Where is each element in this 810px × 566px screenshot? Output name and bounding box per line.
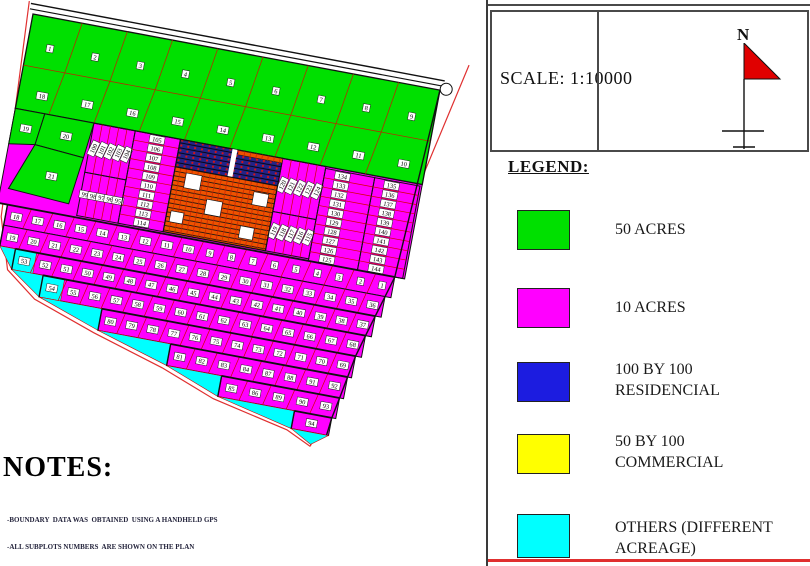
svg-text:43: 43 (232, 297, 240, 305)
panel-bottom-rule (488, 559, 810, 562)
svg-text:12: 12 (309, 144, 317, 152)
svg-text:38: 38 (338, 317, 346, 325)
legend-label: 50 BY 100 COMMERCIAL (615, 431, 723, 473)
survey-point-circle (439, 82, 453, 96)
legend-swatch-10-acres (517, 288, 570, 328)
plot-number: 3 (335, 273, 343, 282)
svg-text:93: 93 (322, 403, 330, 411)
svg-text:29: 29 (220, 274, 228, 282)
svg-text:41: 41 (274, 305, 282, 313)
svg-text:15: 15 (77, 226, 85, 234)
svg-text:60: 60 (177, 309, 185, 317)
legend-label-line: 10 ACRES (615, 297, 686, 318)
svg-text:72: 72 (276, 350, 284, 358)
svg-text:66: 66 (306, 333, 314, 341)
svg-text:63: 63 (241, 321, 249, 329)
svg-text:16: 16 (55, 222, 63, 230)
svg-text:78: 78 (149, 326, 157, 334)
svg-text:32: 32 (284, 286, 292, 294)
svg-text:16: 16 (129, 110, 137, 118)
svg-text:35: 35 (347, 298, 355, 306)
plot-number: 1 (46, 44, 54, 53)
north-label: N (737, 25, 749, 45)
svg-text:83: 83 (220, 362, 228, 370)
plot-number: 7 (249, 257, 257, 266)
svg-text:55: 55 (69, 289, 77, 297)
notes-body: -BOUNDARY DATA WAS OBTAINED USING A HAND… (7, 498, 218, 566)
plot-number: 7 (317, 95, 325, 104)
legend-label-line: COMMERCIAL (615, 452, 723, 473)
legend-swatch-50-acres (517, 210, 570, 250)
plot-number: 8 (362, 104, 370, 113)
legend-swatch-commercial (517, 434, 570, 474)
plot-number: 5 (226, 78, 234, 87)
plot-number: 6 (270, 261, 278, 270)
svg-text:75: 75 (212, 338, 220, 346)
box-divider (597, 12, 599, 150)
svg-text:62: 62 (220, 317, 228, 325)
svg-text:80: 80 (107, 318, 115, 326)
svg-text:88: 88 (286, 374, 294, 382)
svg-text:51: 51 (63, 266, 71, 274)
svg-text:59: 59 (155, 305, 163, 313)
notes-title: NOTES: (3, 452, 113, 484)
svg-text:12: 12 (141, 238, 149, 246)
svg-text:73: 73 (255, 346, 263, 354)
svg-text:13: 13 (120, 234, 128, 242)
legend-label-line: ACREAGE) (615, 538, 773, 559)
svg-text:49: 49 (105, 274, 113, 282)
legend-label-line: 50 ACRES (615, 219, 686, 240)
legend-swatch-residential (517, 362, 570, 402)
legend-label-line: RESIDENCIAL (615, 380, 720, 401)
svg-text:20: 20 (30, 238, 38, 246)
svg-text:92: 92 (331, 383, 339, 391)
plot-number: 6 (272, 87, 280, 96)
legend-swatch-others (517, 514, 570, 558)
svg-text:85: 85 (228, 385, 236, 393)
svg-text:69: 69 (339, 362, 347, 370)
svg-text:26: 26 (157, 262, 165, 270)
svg-text:89: 89 (275, 394, 283, 402)
plot-number: 9 (407, 112, 415, 121)
svg-text:53: 53 (20, 258, 28, 266)
svg-text:21: 21 (48, 173, 56, 181)
svg-text:81: 81 (176, 354, 184, 362)
svg-text:45: 45 (190, 290, 198, 298)
svg-text:21: 21 (51, 242, 59, 250)
svg-text:19: 19 (8, 234, 16, 242)
svg-text:95: 95 (114, 198, 122, 206)
map-rotated-group: 1234567891817161514131211101920211001011… (0, 0, 469, 462)
legend-label-line: 50 BY 100 (615, 431, 723, 452)
panel-top-border (488, 4, 810, 6)
svg-text:31: 31 (263, 282, 271, 290)
legend-label: 100 BY 100 RESIDENCIAL (615, 359, 720, 401)
plot-number: 8 (227, 253, 235, 262)
svg-text:11: 11 (355, 152, 362, 160)
svg-text:40: 40 (295, 309, 303, 317)
svg-text:79: 79 (128, 322, 136, 330)
svg-text:13: 13 (264, 135, 272, 143)
plot-number: 4 (181, 70, 189, 79)
svg-text:61: 61 (198, 313, 206, 321)
svg-text:30: 30 (241, 278, 249, 286)
legend-label: 50 ACRES (615, 219, 686, 240)
svg-text:39: 39 (316, 313, 324, 321)
svg-text:20: 20 (62, 133, 70, 141)
svg-text:28: 28 (199, 270, 207, 278)
svg-text:46: 46 (168, 286, 176, 294)
legend-label: OTHERS (DIFFERENT ACREAGE) (615, 517, 773, 559)
plot-number: 9 (206, 249, 214, 258)
legend-title: LEGEND: (508, 157, 589, 177)
svg-text:76: 76 (191, 334, 199, 342)
panel-divider (486, 0, 488, 566)
plot-number: 2 (356, 277, 364, 286)
svg-text:58: 58 (134, 301, 142, 309)
svg-text:50: 50 (84, 270, 92, 278)
svg-text:11: 11 (163, 242, 170, 250)
svg-text:71: 71 (297, 354, 305, 362)
svg-text:82: 82 (198, 358, 206, 366)
svg-text:19: 19 (22, 125, 30, 133)
svg-text:18: 18 (38, 93, 46, 101)
svg-text:65: 65 (284, 329, 292, 337)
note-line-2: -ALL SUBPLOTS NUMBERS ARE SHOWN ON THE P… (7, 543, 218, 552)
plot-number: 4 (313, 269, 321, 278)
north-arrow-icon (720, 43, 784, 150)
scale-north-box: SCALE: 1:10000 N (490, 10, 809, 152)
svg-text:70: 70 (318, 358, 326, 366)
svg-text:48: 48 (126, 278, 134, 286)
svg-text:90: 90 (298, 398, 306, 406)
plot-number: 2 (91, 53, 99, 62)
svg-text:33: 33 (305, 290, 313, 298)
svg-text:52: 52 (41, 262, 49, 270)
svg-text:68: 68 (349, 341, 357, 349)
svg-text:86: 86 (251, 390, 259, 398)
legend-label-line: 100 BY 100 (615, 359, 720, 380)
svg-text:36: 36 (369, 302, 377, 310)
svg-text:23: 23 (93, 250, 101, 258)
svg-text:42: 42 (253, 301, 261, 309)
north-cell: N (602, 12, 807, 150)
plot-number: 5 (292, 265, 300, 274)
svg-text:18: 18 (12, 214, 20, 222)
plot-number: 1 (378, 281, 386, 290)
survey-plan-page: 1234567891817161514131211101920211001011… (0, 0, 810, 566)
note-line-1: -BOUNDARY DATA WAS OBTAINED USING A HAND… (7, 516, 218, 525)
legend-label-line: OTHERS (DIFFERENT (615, 517, 773, 538)
survey-map: 1234567891817161514131211101920211001011… (0, 0, 487, 505)
legend-label: 10 ACRES (615, 297, 686, 318)
svg-text:56: 56 (91, 293, 99, 301)
plot-number: 3 (136, 61, 144, 70)
svg-text:22: 22 (72, 246, 80, 254)
svg-text:25: 25 (136, 258, 144, 266)
svg-text:10: 10 (185, 246, 193, 254)
svg-text:91: 91 (308, 378, 316, 386)
svg-text:10: 10 (400, 161, 408, 169)
svg-text:15: 15 (174, 118, 182, 126)
